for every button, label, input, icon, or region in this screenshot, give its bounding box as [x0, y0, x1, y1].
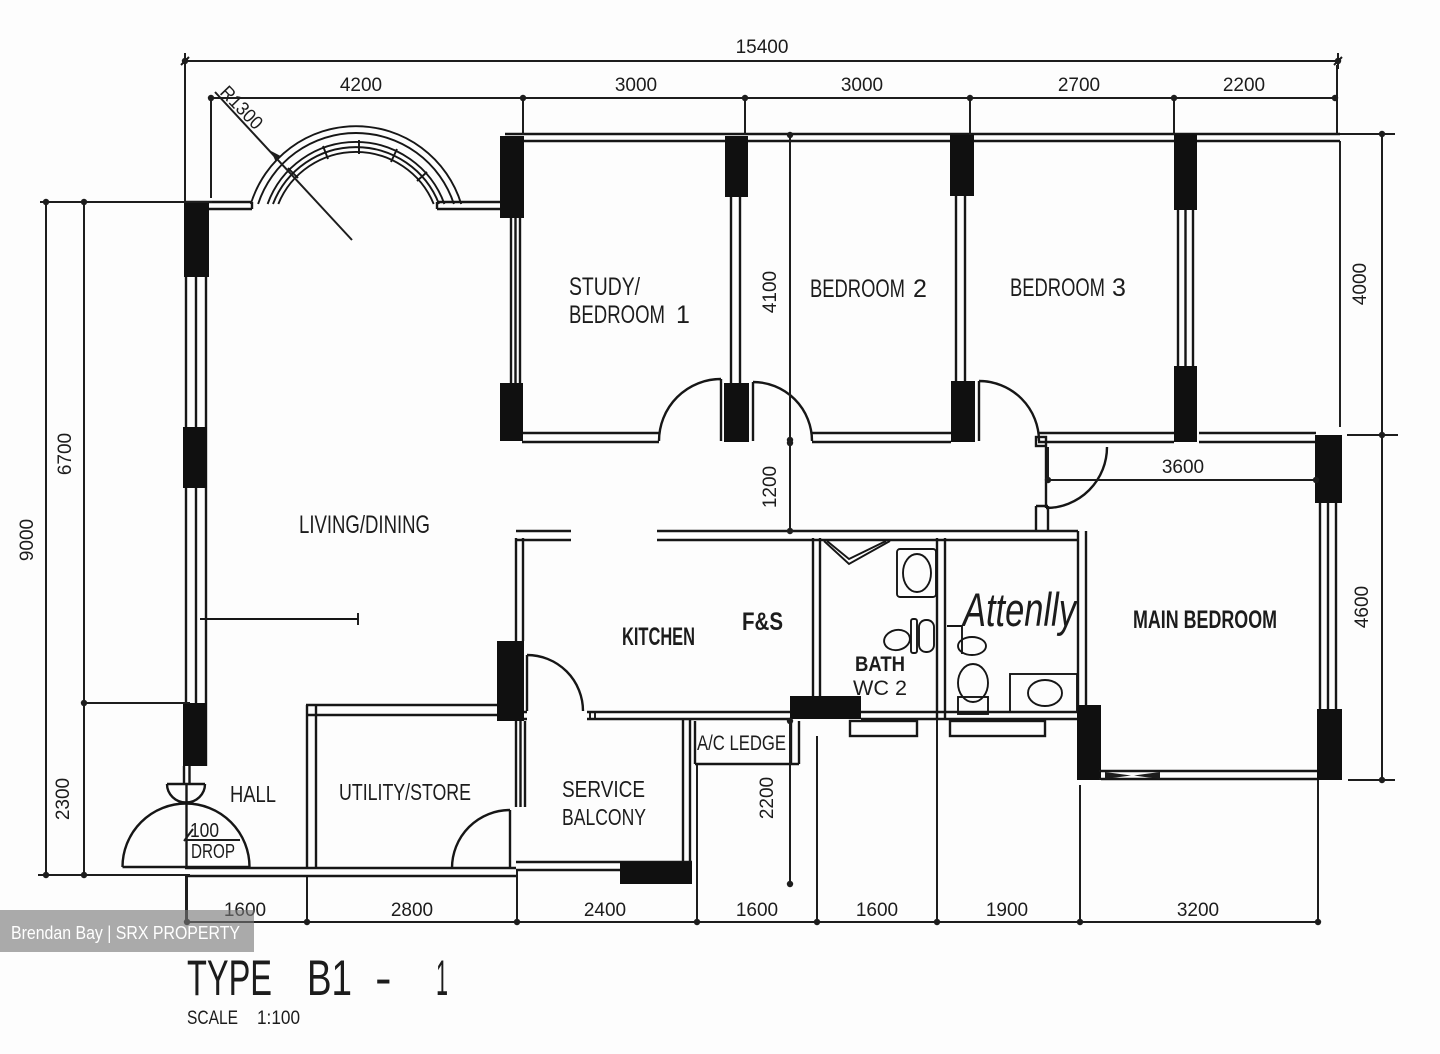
- svg-text:BEDROOM: BEDROOM: [1010, 274, 1105, 302]
- svg-text:3600: 3600: [1162, 457, 1204, 478]
- svg-text:BALCONY: BALCONY: [562, 804, 646, 830]
- svg-text:F&S: F&S: [742, 608, 783, 636]
- svg-text:3000: 3000: [841, 75, 883, 96]
- svg-text:2700: 2700: [1058, 75, 1100, 96]
- svg-text:1: 1: [436, 950, 448, 1006]
- svg-text:KITCHEN: KITCHEN: [622, 623, 695, 651]
- svg-text:6700: 6700: [55, 433, 76, 475]
- svg-text:SCALE: SCALE: [187, 1008, 238, 1029]
- svg-text:1200: 1200: [760, 466, 781, 508]
- svg-text:BATH: BATH: [855, 653, 905, 676]
- svg-text:B1: B1: [307, 950, 352, 1006]
- svg-text:2200: 2200: [1223, 75, 1265, 96]
- svg-text:A/C LEDGE: A/C LEDGE: [697, 732, 786, 755]
- svg-text:15400: 15400: [736, 37, 789, 58]
- svg-text:1600: 1600: [736, 900, 778, 921]
- svg-text:1:100: 1:100: [257, 1008, 300, 1029]
- svg-text:TYPE: TYPE: [187, 950, 272, 1006]
- svg-text:1600: 1600: [856, 900, 898, 921]
- svg-text:2: 2: [913, 275, 927, 303]
- svg-text:2800: 2800: [391, 900, 433, 921]
- svg-text:UTILITY/STORE: UTILITY/STORE: [339, 779, 471, 805]
- svg-text:4600: 4600: [1352, 586, 1373, 628]
- svg-text:2300: 2300: [53, 778, 74, 820]
- svg-text:4200: 4200: [340, 75, 382, 96]
- svg-text:4100: 4100: [760, 271, 781, 313]
- svg-text:4000: 4000: [1350, 263, 1371, 305]
- svg-text:1900: 1900: [986, 900, 1028, 921]
- svg-text:BEDROOM: BEDROOM: [569, 301, 665, 329]
- svg-text:WC 2: WC 2: [853, 677, 907, 700]
- svg-text:MAIN BEDROOM: MAIN BEDROOM: [1133, 606, 1277, 634]
- svg-text:SERVICE: SERVICE: [562, 776, 645, 802]
- svg-text:Brendan Bay | SRX PROPERTY: Brendan Bay | SRX PROPERTY: [11, 922, 240, 943]
- svg-text:1: 1: [676, 301, 690, 329]
- svg-text:LIVING/DINING: LIVING/DINING: [299, 511, 430, 539]
- svg-text:Attenlly: Attenlly: [961, 583, 1078, 636]
- svg-text:2200: 2200: [757, 777, 778, 819]
- svg-text:-: -: [375, 950, 392, 1006]
- svg-text:9000: 9000: [17, 519, 38, 561]
- svg-text:BEDROOM: BEDROOM: [810, 275, 905, 303]
- svg-text:3200: 3200: [1177, 900, 1219, 921]
- svg-text:3000: 3000: [615, 75, 657, 96]
- svg-text:HALL: HALL: [230, 781, 276, 807]
- svg-text:3: 3: [1112, 274, 1126, 302]
- svg-text:STUDY/: STUDY/: [569, 273, 640, 301]
- svg-text:DROP: DROP: [191, 841, 235, 863]
- svg-text:100: 100: [190, 820, 219, 842]
- svg-text:2400: 2400: [584, 900, 626, 921]
